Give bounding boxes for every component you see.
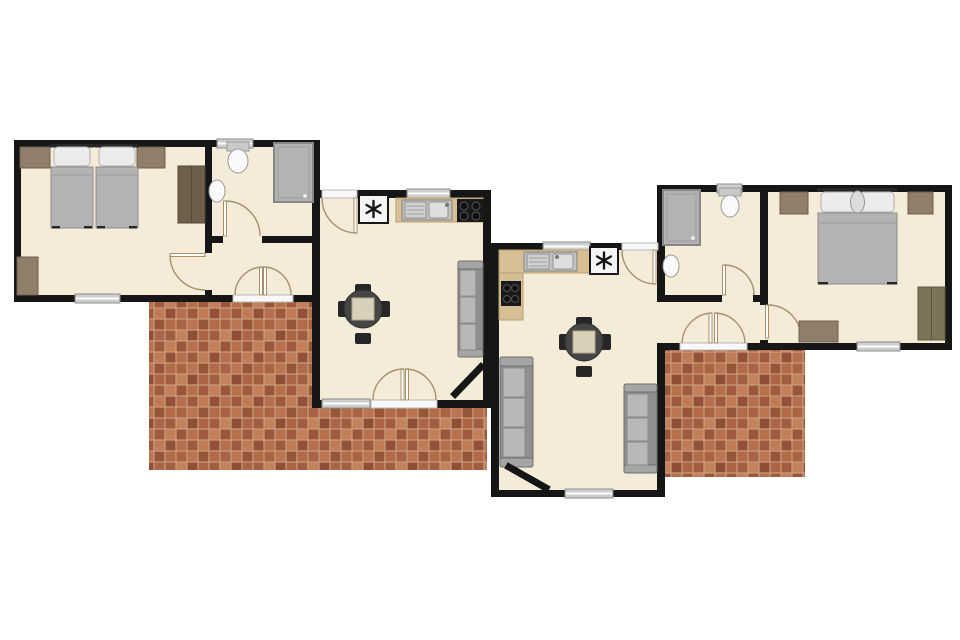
wall-right-bedroom-east <box>945 185 952 350</box>
double-bed-cushion <box>851 191 865 213</box>
sofa-cushion <box>503 368 525 397</box>
nightstand <box>20 147 50 168</box>
shower-drain <box>691 236 695 240</box>
door-leaf-left-living-french-a <box>401 369 404 400</box>
bathroom-sink <box>209 180 225 202</box>
double-bed-foot <box>818 282 828 285</box>
shower-drain <box>303 194 307 198</box>
sofa-armrest <box>624 465 657 473</box>
dining-tabletop <box>573 331 595 353</box>
nightstand <box>908 192 933 214</box>
door-leaf-left-bath <box>224 201 227 236</box>
terrace-right <box>665 350 805 477</box>
window-left-bedroom-bottom <box>75 294 120 303</box>
floor-plan <box>0 0 960 640</box>
stove-burner <box>512 285 519 292</box>
sofa-armrest <box>500 357 533 366</box>
toilet-bowl <box>228 149 248 173</box>
dining-chair <box>576 366 592 377</box>
stove-burner <box>472 202 480 210</box>
door-leaf-left-hall-french-a <box>260 267 263 295</box>
wall-right-bedroom-bottom <box>760 343 952 350</box>
toilet-bowl <box>721 195 739 217</box>
door-leaf-left-entrance <box>354 198 357 233</box>
threshold-left-living-french <box>371 400 437 408</box>
twin-bed-foot <box>129 226 137 229</box>
bathroom-sink <box>663 255 679 277</box>
stove-burner <box>512 296 519 303</box>
nightstand <box>780 192 808 214</box>
stove-burner <box>504 296 511 303</box>
stove <box>501 281 521 306</box>
sofa-armrest <box>500 458 533 467</box>
window-right-living-bottom <box>565 489 613 498</box>
sofa-cushion <box>627 442 648 465</box>
sofa-cushion <box>627 418 648 441</box>
door-leaf-right-hall-french-b <box>715 313 718 343</box>
twin-bed-foot <box>84 226 92 229</box>
nightstand <box>137 147 165 168</box>
floor-plan-page <box>0 0 960 640</box>
window-left-kitchen-top <box>407 189 450 198</box>
sofa-cushion <box>503 428 525 457</box>
sink-faucet <box>445 203 449 207</box>
twin-bed-foot <box>52 226 60 229</box>
stove-burner <box>460 212 468 220</box>
wall-right-living-west <box>491 243 499 497</box>
threshold-right-entrance <box>622 243 658 250</box>
opening-left-bath-door <box>223 236 262 243</box>
threshold-right-hall-french <box>680 343 747 350</box>
double-bed-blanket <box>818 213 897 284</box>
window-left-living-bottom <box>322 399 370 408</box>
opening-left-bedroom-door <box>205 253 212 290</box>
wall-right-living-east-lower <box>657 345 665 497</box>
sink-faucet <box>555 255 559 259</box>
twin-bed-pillow <box>99 147 135 166</box>
door-leaf-right-entrance <box>653 250 656 284</box>
door-leaf-left-hall-french-b <box>264 267 267 295</box>
opening-right-bath-door <box>722 295 753 302</box>
threshold-left-hall-french <box>233 295 293 302</box>
terrace-left-lower <box>313 408 487 470</box>
stove-burner <box>504 285 511 292</box>
dining-chair <box>355 333 371 344</box>
terrace-left-upper <box>149 302 313 470</box>
door-leaf-left-bedroom <box>170 254 205 257</box>
door-leaf-right-bedroom <box>766 305 769 338</box>
door-leaf-right-hall-french-a <box>709 313 712 343</box>
wall-left-living-east <box>483 190 491 408</box>
window-right-bedroom-bottom <box>857 342 900 351</box>
sofa-cushion <box>627 394 648 417</box>
sofa-cushion <box>460 324 476 350</box>
dresser <box>799 321 838 342</box>
twin-bed-blanket <box>96 167 138 228</box>
stove-burner <box>460 202 468 210</box>
shower <box>274 143 313 202</box>
double-bed-foot <box>887 282 897 285</box>
twin-bed-pillow <box>54 147 90 166</box>
door-leaf-right-bath <box>723 265 726 295</box>
dresser <box>17 257 38 295</box>
twin-bed-blanket <box>51 167 93 228</box>
threshold-left-entrance <box>322 190 357 198</box>
sofa-cushion <box>503 398 525 427</box>
sofa-cushion <box>460 297 476 323</box>
door-leaf-left-living-french-b <box>406 369 409 400</box>
stove-burner <box>472 212 480 220</box>
wall-left-bath-bottom <box>205 236 320 243</box>
sofa-armrest <box>458 261 483 269</box>
sofa-armrest <box>624 384 657 392</box>
dining-tabletop <box>352 298 374 320</box>
twin-bed-foot <box>97 226 105 229</box>
sofa-cushion <box>460 270 476 296</box>
